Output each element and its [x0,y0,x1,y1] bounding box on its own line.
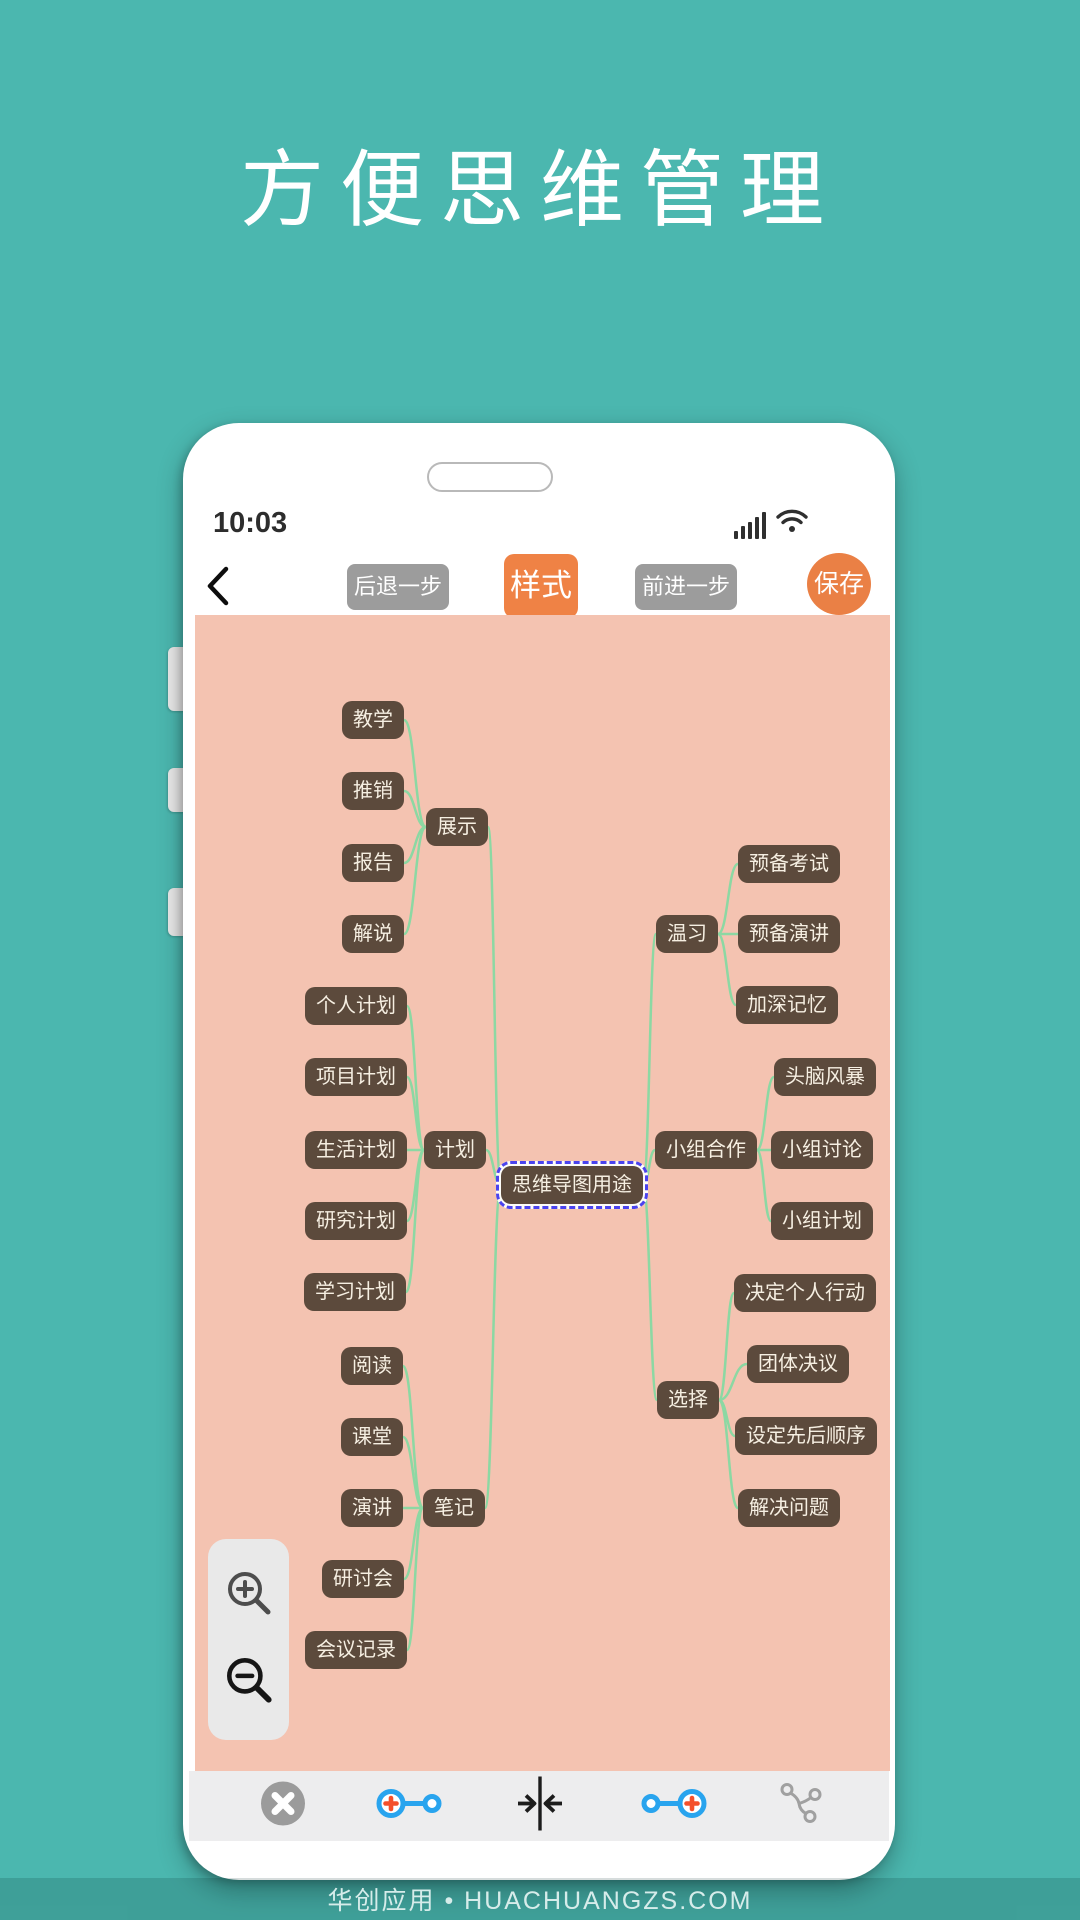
mindmap-node-juedingxingdong[interactable]: 决定个人行动 [734,1274,876,1312]
mindmap-node-ketang[interactable]: 课堂 [341,1418,403,1456]
mindmap-node-yuedu[interactable]: 阅读 [341,1347,403,1385]
mindmap-node-baogao[interactable]: 报告 [342,844,404,882]
page-title: 方便思维管理 [0,148,1080,232]
status-time: 10:03 [213,507,287,540]
mindmap-node-tuantijueyi[interactable]: 团体决议 [747,1345,849,1383]
mindmap-node-jieshuo[interactable]: 解说 [342,915,404,953]
mindmap-node-yubeikaoshi[interactable]: 预备考试 [738,845,840,883]
speaker-pill [427,462,553,492]
footer-band: 华创应用 • HUACHUANGZS.COM [0,1878,1080,1920]
status-bar: 10:03 [183,503,895,549]
mindmap-node-shenghuojihua[interactable]: 生活计划 [305,1131,407,1169]
mindmap-node-yubeiyanjiang[interactable]: 预备演讲 [738,915,840,953]
mindmap-node-tuixiao[interactable]: 推销 [342,772,404,810]
tree-structure-icon[interactable] [779,1782,823,1831]
wifi-icon [775,506,809,539]
mindmap-node-jiashenjiyi[interactable]: 加深记忆 [736,986,838,1024]
phone-mockup: 10:03 后退一步 样式 前进一步 保存 思维导图用途展示教学推销报告解说计划… [183,423,895,1880]
mindmap-node-xuexijihua[interactable]: 学习计划 [304,1273,406,1311]
footer-text: 华创应用 • HUACHUANGZS.COM [328,1881,753,1917]
zoom-out-icon[interactable] [221,1652,277,1713]
mindmap-node-huiyijilu[interactable]: 会议记录 [305,1631,407,1669]
mindmap-node-shedingshunxu[interactable]: 设定先后顺序 [735,1417,877,1455]
mindmap-node-xiaozujihua[interactable]: 小组计划 [771,1202,873,1240]
add-parent-node-icon[interactable] [375,1785,443,1828]
mindmap-node-center[interactable]: 思维导图用途 [501,1166,643,1204]
mindmap-node-xiaozuhezuo[interactable]: 小组合作 [655,1131,757,1169]
mindmap-node-jihua[interactable]: 计划 [424,1131,486,1169]
style-button[interactable]: 样式 [504,554,578,618]
save-button[interactable]: 保存 [807,553,871,615]
mindmap-node-biji[interactable]: 笔记 [423,1489,485,1527]
mindmap-node-xiaozutaolun[interactable]: 小组讨论 [771,1131,873,1169]
zoom-panel [208,1539,289,1740]
mindmap-node-xuanze[interactable]: 选择 [657,1381,719,1419]
undo-button[interactable]: 后退一步 [347,564,449,610]
signal-icon [734,512,766,539]
redo-button[interactable]: 前进一步 [635,564,737,610]
mindmap-node-wenxi[interactable]: 温习 [656,915,718,953]
mindmap-node-yanjiang[interactable]: 演讲 [341,1489,403,1527]
back-button[interactable] [205,565,231,612]
mindmap-canvas[interactable]: 思维导图用途展示教学推销报告解说计划个人计划项目计划生活计划研究计划学习计划笔记… [195,615,890,1771]
mindmap-node-tounaofengbao[interactable]: 头脑风暴 [774,1058,876,1096]
mindmap-node-yanjiujihua[interactable]: 研究计划 [305,1202,407,1240]
mindmap-node-jiejuewenti[interactable]: 解决问题 [738,1489,840,1527]
mindmap-node-gerenjihua[interactable]: 个人计划 [305,987,407,1025]
mindmap-node-jiaoxue[interactable]: 教学 [342,701,404,739]
mindmap-node-yantaohui[interactable]: 研讨会 [322,1560,404,1598]
bottom-toolbar [189,1771,889,1841]
close-icon[interactable] [260,1781,306,1832]
mindmap-node-zhanshi[interactable]: 展示 [426,808,488,846]
add-child-node-icon[interactable] [640,1785,708,1828]
collapse-node-icon[interactable] [517,1775,563,1838]
zoom-in-icon[interactable] [222,1566,276,1625]
mindmap-node-xiangmujihua[interactable]: 项目计划 [305,1058,407,1096]
